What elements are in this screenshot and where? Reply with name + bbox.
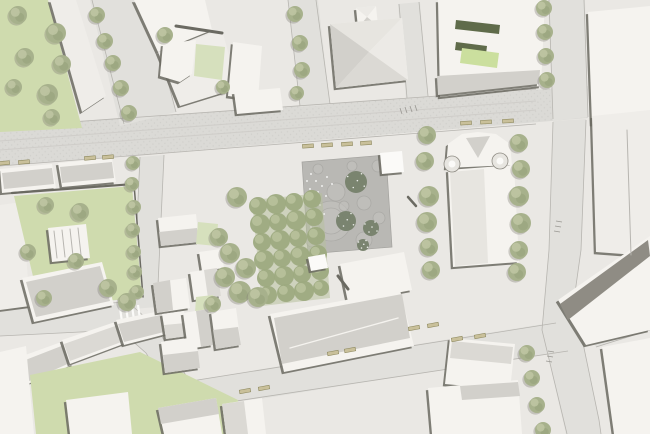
plaza-tree-speckle xyxy=(353,224,355,226)
plaza-tree-speckle xyxy=(361,247,363,249)
grove-tree-highlight xyxy=(251,199,260,208)
plaza-tree-speckle xyxy=(350,213,352,215)
site-plan-map xyxy=(0,0,650,434)
plaza-tree-speckle xyxy=(343,225,345,227)
plaza-tree-speckle xyxy=(361,173,363,175)
grove-tree-highlight xyxy=(279,286,288,295)
plaza-play-dot-13 xyxy=(331,183,333,185)
bench-1 xyxy=(18,160,29,165)
grove-tree-highlight xyxy=(295,267,304,276)
plaza-tree-speckle xyxy=(368,231,370,233)
plaza-tree-speckle xyxy=(352,187,354,189)
plaza-tree-speckle xyxy=(357,180,359,182)
grove-tree-highlight xyxy=(311,247,320,256)
grove-tree-highlight xyxy=(309,229,318,238)
grove-tree-highlight xyxy=(271,215,280,224)
plaza-tree-speckle xyxy=(347,176,349,178)
plaza-tree-2 xyxy=(363,220,379,236)
grove-tree-highlight xyxy=(252,216,262,226)
bench-10 xyxy=(502,119,513,123)
plaza-tree-speckle xyxy=(338,215,340,217)
grove-tree-highlight xyxy=(268,196,278,206)
grove-tree-highlight xyxy=(307,210,316,219)
plaza-mound-3 xyxy=(357,196,371,210)
church-tower-round-west-core xyxy=(449,161,456,168)
plaza-tree-0 xyxy=(345,171,367,193)
grove-tree-highlight xyxy=(259,271,268,280)
plaza-play-dot-1 xyxy=(315,180,317,182)
bench-4 xyxy=(302,144,313,148)
plaza-tree-speckle xyxy=(346,219,348,221)
plaza-tree-speckle xyxy=(363,185,365,187)
grove-tree-highlight xyxy=(255,235,264,244)
plaza-tree-speckle xyxy=(365,240,367,242)
plaza-mound-10 xyxy=(339,201,349,211)
site-plan-canvas xyxy=(0,0,650,434)
building-right-middle xyxy=(590,110,650,258)
plaza-play-dot-8 xyxy=(321,185,323,187)
plaza-mound-2 xyxy=(327,183,345,201)
plaza-tree-3 xyxy=(357,239,369,251)
plaza-play-dot-9 xyxy=(325,195,327,197)
plaza-play-dot-2 xyxy=(309,188,311,190)
bench-5 xyxy=(321,143,332,147)
church-tower-round-east-core xyxy=(497,158,504,165)
plaza-play-dot-14 xyxy=(306,180,308,182)
bench-8 xyxy=(460,121,471,125)
plaza-play-dot-12 xyxy=(326,176,328,178)
grove-tree-highlight xyxy=(315,282,323,290)
grove-tree-highlight xyxy=(272,232,282,242)
grove-tree-highlight xyxy=(296,283,306,293)
plaza-tree-speckle xyxy=(364,223,366,225)
church-nave-roof-west xyxy=(450,169,488,266)
plaza-tree-speckle xyxy=(363,243,365,245)
bench-9 xyxy=(480,120,491,124)
grove-tree-highlight xyxy=(305,192,314,201)
street-right-north xyxy=(548,0,588,121)
plaza-pavilion xyxy=(378,151,404,176)
bench-0 xyxy=(0,161,10,166)
grove-tree-highlight xyxy=(276,268,286,278)
grove-bench-pad xyxy=(306,254,328,273)
grove-tree-highlight xyxy=(292,248,302,258)
grove-tree-highlight xyxy=(287,195,296,204)
plaza-tree-speckle xyxy=(367,246,369,248)
plaza-tree-speckle xyxy=(371,226,373,228)
grove-tree-highlight xyxy=(256,252,266,262)
courtyard-lawn-topcenter xyxy=(194,44,225,80)
grove-tree-highlight xyxy=(291,231,300,240)
plaza-play-dot-0 xyxy=(310,173,312,175)
plaza-mound-7 xyxy=(347,161,357,171)
plaza-tree-speckle xyxy=(374,221,376,223)
grove-tree-highlight xyxy=(275,251,284,260)
plaza-mound-5 xyxy=(313,164,323,174)
house-10-roof xyxy=(222,401,248,434)
bench-6 xyxy=(341,142,352,146)
building-mainstreet-north xyxy=(232,88,283,116)
bench-2 xyxy=(84,156,95,161)
bench-3 xyxy=(102,155,113,160)
plaza-tree-speckle xyxy=(358,241,360,243)
plaza-tree-speckle xyxy=(376,230,378,232)
bench-7 xyxy=(360,141,371,145)
grove-tree-highlight xyxy=(288,212,298,222)
plaza-tree-1 xyxy=(336,211,356,231)
